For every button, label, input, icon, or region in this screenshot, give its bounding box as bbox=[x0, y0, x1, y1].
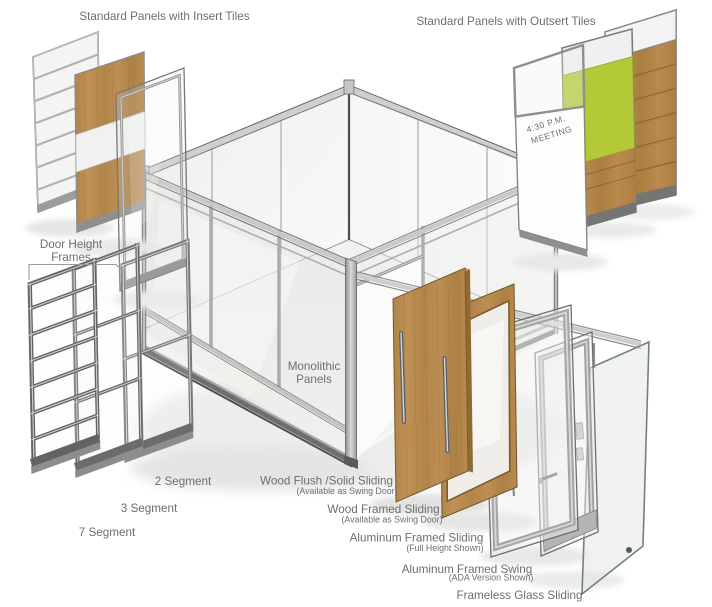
svg-text:Door Height: Door Height bbox=[40, 238, 103, 251]
svg-text:(ADA Version Shown): (ADA Version Shown) bbox=[449, 573, 534, 583]
svg-text:Standard Panels with Outsert T: Standard Panels with Outsert Tiles bbox=[416, 15, 595, 28]
svg-text:(Available as Swing Door): (Available as Swing Door) bbox=[296, 486, 397, 496]
svg-text:Panels: Panels bbox=[296, 373, 332, 386]
svg-text:Frames: Frames bbox=[51, 251, 91, 264]
svg-text:Monolithic: Monolithic bbox=[288, 360, 341, 373]
svg-text:7 Segment: 7 Segment bbox=[79, 526, 136, 539]
svg-text:(Full Height Shown): (Full Height Shown) bbox=[406, 543, 483, 553]
svg-text:Frameless Glass Sliding: Frameless Glass Sliding bbox=[456, 589, 582, 602]
svg-text:2 Segment: 2 Segment bbox=[155, 475, 212, 488]
svg-text:3 Segment: 3 Segment bbox=[121, 502, 178, 515]
svg-text:Standard Panels with Insert Ti: Standard Panels with Insert Tiles bbox=[79, 10, 249, 23]
svg-text:(Available as Swing Door): (Available as Swing Door) bbox=[341, 515, 442, 525]
